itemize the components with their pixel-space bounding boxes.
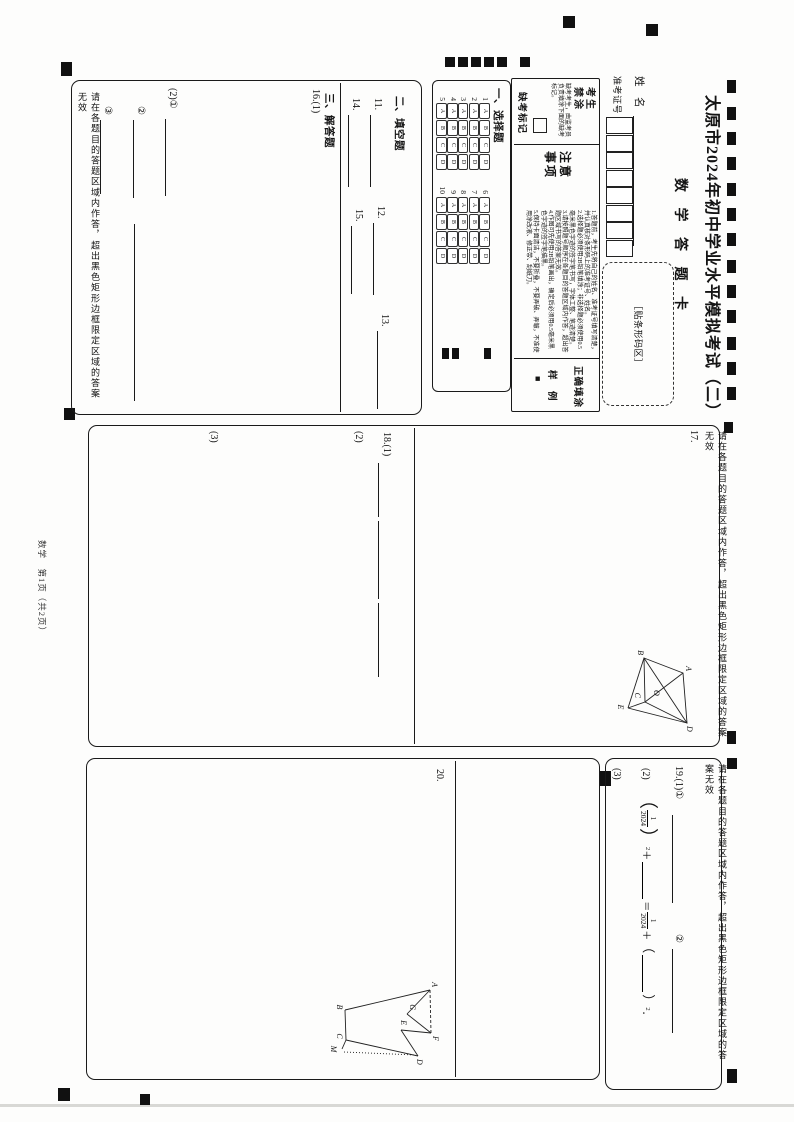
no-fill-text: 缺考考生，由监考员负责填涂下面的缺考标记。: [548, 83, 570, 141]
answer-bubble-q1-D[interactable]: D: [480, 154, 491, 170]
answer-bubble-q4-D[interactable]: D: [447, 154, 458, 170]
q20-figure: A B C D E F G M: [326, 973, 444, 1081]
calibration-mark: [452, 348, 459, 359]
answer-bubble-q3-D[interactable]: D: [458, 154, 469, 170]
q19-3-label: (3): [611, 768, 622, 780]
q17-point-label: A: [684, 665, 693, 671]
id-digit-box[interactable]: [606, 187, 633, 204]
notice-divider-2: [514, 358, 599, 359]
scan-edge-shadow: [0, 1104, 794, 1107]
question-number: 5: [438, 89, 447, 101]
answer-bubble-q10-D[interactable]: D: [436, 248, 447, 264]
question-number: 2: [470, 89, 479, 101]
answer-bubble-q2-B[interactable]: B: [469, 120, 480, 136]
answer-bubble-q3-C[interactable]: C: [458, 137, 469, 153]
q16-2-2-answer-line-2[interactable]: [134, 224, 148, 401]
period: ．: [641, 1011, 656, 1021]
q20-point-label: G: [408, 1004, 417, 1010]
fill-solve-box: 二、填空题 11. 12. 13. 14. 15. 三、解答题 16.(1) (…: [71, 80, 422, 415]
fraction: 1 2024: [639, 810, 657, 827]
q15-label: 15.: [353, 209, 364, 222]
notice-divider-1: [514, 144, 599, 145]
plus-sign: ＋: [641, 850, 656, 860]
q19-1-1-answer-line[interactable]: [672, 815, 685, 903]
answer-bubble-q7-A[interactable]: A: [469, 197, 480, 213]
answer-bubble-q7-D[interactable]: D: [469, 248, 480, 264]
timing-mark: [727, 310, 736, 323]
id-digit-box[interactable]: [606, 170, 633, 187]
plus-sign: ＋: [641, 930, 656, 940]
q16-2-3-answer-line[interactable]: [100, 120, 114, 194]
answer-bubble-q5-A[interactable]: A: [436, 103, 447, 119]
answer-bubble-q3-A[interactable]: A: [458, 103, 469, 119]
q16-2-2-label: ②: [135, 106, 146, 115]
id-digit-box[interactable]: [606, 152, 633, 169]
q16-2-2-answer-line[interactable]: [133, 120, 147, 198]
timing-mark: [458, 57, 468, 67]
paren-close: ）: [641, 994, 655, 1007]
solve-section-title: 三、解答题: [322, 93, 337, 148]
q13-label: 13.: [379, 314, 390, 327]
paren-open: （: [641, 940, 655, 953]
timing-mark: [727, 362, 736, 375]
notes-list: 1.答题前，考生先将自己的姓名、准考证号填写清楚，并认真核对条形码上的准考证号、…: [524, 210, 596, 354]
question-number: 10: [438, 182, 447, 194]
q14-answer-line[interactable]: [348, 115, 362, 187]
timing-mark: [727, 183, 736, 196]
q19-q20-divider: [455, 761, 456, 1077]
fraction: 1 2024: [639, 912, 657, 929]
q18-3-label: (3): [208, 431, 219, 443]
q20-point-label: F: [431, 1035, 440, 1041]
region-warning-col1: 请在各题目的答题区域内作答，超出黑色矩形边框限定区域的答案无效: [76, 92, 102, 408]
answer-bubble-q7-B[interactable]: B: [469, 214, 480, 230]
fill-section-title: 二、填空题: [392, 96, 407, 151]
sample-title: 正确填涂: [572, 366, 586, 408]
answer-bubble-q9-D[interactable]: D: [447, 248, 458, 264]
answer-bubble-q5-B[interactable]: B: [436, 120, 447, 136]
answer-bubble-q7-C[interactable]: C: [469, 231, 480, 247]
answer-bubble-q9-C[interactable]: C: [447, 231, 458, 247]
q18-1-answer-line[interactable]: [378, 521, 391, 599]
q15-answer-line[interactable]: [351, 226, 365, 294]
answer-bubble-q5-C[interactable]: C: [436, 137, 447, 153]
q17-point-label: O: [652, 690, 661, 696]
sample-label: 样 例: [546, 370, 560, 402]
timing-mark: [727, 157, 736, 170]
note-item: 4.作图可先使用2B铅笔画出，确定后必须用0.5毫米黑色字迹的签字笔描黑。: [538, 210, 552, 354]
q20-label: 20.: [434, 769, 445, 782]
timing-mark: [727, 208, 736, 221]
answer-bubble-q9-A[interactable]: A: [447, 197, 458, 213]
answer-bubble-q4-A[interactable]: A: [447, 103, 458, 119]
question-number: 1: [481, 89, 490, 101]
q20-point-label: B: [335, 1005, 344, 1010]
q19-2-expression: （ 1 2024 ） 2 ＋ ＝ 1 2024 ＋ （ ） 2 ．: [633, 790, 663, 1021]
answer-bubble-q4-B[interactable]: B: [447, 120, 458, 136]
q17-point-label: D: [685, 725, 694, 732]
sheet-subtitle: 数 学 答 题 卡: [671, 178, 691, 316]
answer-bubble-q10-B[interactable]: B: [436, 214, 447, 230]
barcode-label: ［贴条形码区］: [632, 301, 645, 368]
q16-2-1-answer-line[interactable]: [165, 119, 179, 196]
answer-bubble-q6-C[interactable]: C: [480, 231, 491, 247]
registration-mark: [61, 62, 72, 76]
answer-bubble-q1-B[interactable]: B: [480, 120, 491, 136]
note-item: 5.保持卡面清洁，不要折叠，不要弄破、弄皱，不准使用涂改液、修正带、刮纸刀。: [524, 210, 538, 354]
id-digit-box[interactable]: [606, 222, 633, 239]
q12-label: 12.: [375, 206, 386, 219]
q19-2-blank-1[interactable]: [642, 862, 654, 899]
exam-title: 太原市2024年初中学业水平模拟考试（二）: [702, 95, 726, 420]
answer-bubble-q2-A[interactable]: A: [469, 103, 480, 119]
answer-bubble-q8-A[interactable]: A: [458, 197, 469, 213]
page-footer: 数学 第1页（共2页）: [36, 540, 48, 636]
notice-box: 考生禁涂 缺考考生，由监考员负责填涂下面的缺考标记。 缺考标记 注意事项 1.答…: [511, 78, 600, 412]
q18-label: 18.(1): [381, 432, 392, 456]
q19-1-2-answer-line[interactable]: [672, 949, 685, 1033]
answer-bubble-q1-A[interactable]: A: [480, 103, 491, 119]
answer-bubble-q6-D[interactable]: D: [480, 248, 491, 264]
q20-point-label: A: [430, 981, 439, 987]
answer-bubble-q9-B[interactable]: B: [447, 214, 458, 230]
q18-1-answer-line[interactable]: [378, 603, 391, 677]
calibration-mark: [442, 348, 449, 359]
section-divider: [340, 83, 341, 412]
mcq-section-title: 一、选择题: [491, 88, 506, 143]
q19-2-label: (2): [640, 768, 651, 780]
registration-mark: [563, 16, 575, 28]
answer-sheet-landscape: 太原市2024年初中学业水平模拟考试（二） 数 学 答 题 卡 姓 名 准考证号…: [0, 0, 794, 1122]
timing-mark: [727, 285, 736, 298]
absent-label: 缺考标记: [516, 92, 530, 134]
timing-mark: [727, 132, 736, 145]
question-number: 4: [449, 89, 458, 101]
q20-point-label: D: [415, 1058, 424, 1065]
q11-label: 11.: [372, 98, 383, 110]
id-digit-box[interactable]: [606, 205, 633, 222]
barcode-area[interactable]: ［贴条形码区］: [602, 262, 674, 406]
q17-q18-divider: [414, 428, 415, 744]
question-number: 9: [449, 182, 458, 194]
question-number: 8: [459, 182, 468, 194]
answer-bubble-q1-C[interactable]: C: [480, 137, 491, 153]
id-digit-box[interactable]: [606, 117, 633, 134]
equals-sign: ＝: [641, 901, 656, 911]
answer-bubble-q6-B[interactable]: B: [480, 214, 491, 230]
q14-label: 14.: [350, 98, 361, 111]
timing-mark: [727, 387, 736, 400]
scanned-answer-sheet: 太原市2024年初中学业水平模拟考试（二） 数 学 答 题 卡 姓 名 准考证号…: [0, 0, 794, 1122]
answer-bubble-q6-A[interactable]: A: [480, 197, 491, 213]
q18-2-label: (2): [353, 431, 364, 443]
q16-2-3-label: ③: [102, 106, 113, 115]
region-warning-col3: 请在各题目的答题区域内作答，超出黑色矩形边框限定区域的答案无效: [703, 764, 729, 1066]
note-item: 1.答题前，考生先将自己的姓名、准考证号填写清楚，并认真核对条形码上的准考证号、…: [582, 210, 596, 354]
question-number: 6: [481, 182, 490, 194]
id-digit-box[interactable]: [606, 240, 633, 257]
q16-2-1-label: (2)①: [167, 88, 178, 109]
q13-answer-line[interactable]: [377, 331, 391, 409]
timing-mark: [727, 233, 736, 246]
note-item: 2.选择题必须使用2B铅笔填涂；非选择题必须使用0.5毫米黑色字迹的签字笔书写，…: [567, 210, 581, 354]
notes-title: 注意事项: [542, 151, 572, 181]
q18-1-answer-line[interactable]: [378, 463, 391, 517]
id-digit-box[interactable]: [606, 135, 633, 152]
q20-point-label: M: [329, 1045, 338, 1054]
timing-mark: [727, 337, 736, 350]
name-input-line[interactable]: [633, 116, 647, 246]
question-number: 3: [459, 89, 468, 101]
answer-bubble-q4-C[interactable]: C: [447, 137, 458, 153]
q20-figure-edges: [342, 990, 431, 1056]
question-number: 7: [470, 182, 479, 194]
q17-point-label: C: [633, 693, 642, 699]
q17-point-label: E: [616, 704, 625, 710]
q11-answer-line[interactable]: [370, 115, 384, 187]
answer-bubble-q8-D[interactable]: D: [458, 248, 469, 264]
exam-id-label: 准考证号: [611, 76, 624, 114]
timing-mark: [727, 107, 736, 120]
registration-mark: [727, 1069, 737, 1083]
q19-1-2-label: ②: [673, 934, 684, 943]
answer-bubble-q5-D[interactable]: D: [436, 154, 447, 170]
answer-bubble-q3-B[interactable]: B: [458, 120, 469, 136]
q17-figure: A B C D E O: [613, 638, 699, 750]
answer-bubble-q10-A[interactable]: A: [436, 197, 447, 213]
q19-2-blank-2[interactable]: [642, 955, 654, 992]
timing-mark: [727, 80, 736, 93]
q16-label: 16.(1): [310, 89, 321, 113]
absent-mark-box[interactable]: [533, 118, 547, 133]
region-warning-col2: 请在各题目的答题区域内作答，超出黑色矩形边框限定区域的答案无效: [703, 431, 729, 741]
registration-mark: [58, 1088, 70, 1101]
q17-point-label: B: [636, 650, 645, 655]
timing-mark: [727, 260, 736, 273]
answer-bubble-q2-D[interactable]: D: [469, 154, 480, 170]
no-fill-title: 考生禁涂: [571, 87, 595, 113]
mcq-box: 一、选择题 1ABCD2ABCD3ABCD4ABCD5ABCD6ABCD7ABC…: [432, 80, 511, 392]
timing-mark: [445, 57, 455, 67]
registration-mark: [140, 1094, 150, 1105]
answer-bubble-q8-B[interactable]: B: [458, 214, 469, 230]
timing-mark: [520, 57, 530, 67]
sample-filled-mark: ■: [533, 376, 543, 381]
q20-point-label: C: [335, 1033, 344, 1039]
q20-point-label: E: [399, 1019, 408, 1025]
answer-bubble-q8-C[interactable]: C: [458, 231, 469, 247]
name-label: 姓 名: [632, 76, 647, 108]
answer-bubble-q10-C[interactable]: C: [436, 231, 447, 247]
timing-mark: [471, 57, 481, 67]
paren-close: ）: [639, 828, 658, 847]
q19-label: 19.(1)①: [673, 766, 684, 799]
timing-mark: [497, 57, 507, 67]
registration-mark: [646, 24, 658, 36]
q12-answer-line[interactable]: [373, 223, 387, 295]
q17-label: 17.: [688, 430, 699, 443]
paren-open: （: [639, 790, 658, 809]
timing-mark: [484, 57, 494, 67]
calibration-mark: [484, 348, 491, 359]
answer-bubble-q2-C[interactable]: C: [469, 137, 480, 153]
note-item: 3.请按照题号顺序在各题目的答题区域内作答，超出答题区域书写的答案无效。: [553, 210, 567, 354]
